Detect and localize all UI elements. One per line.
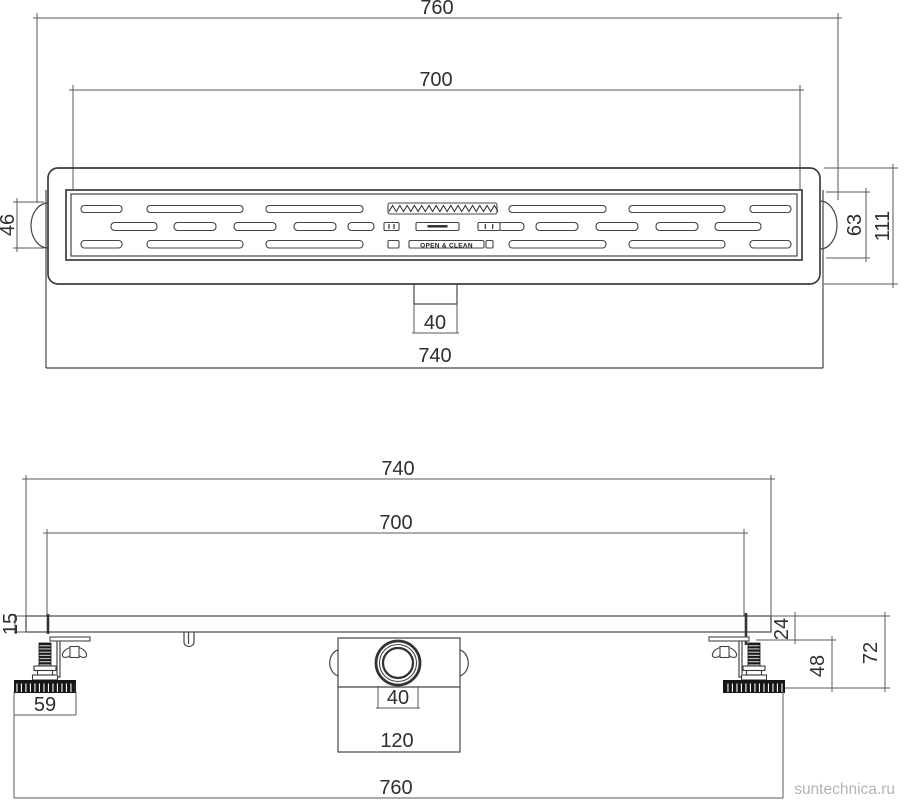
trap-clip-left bbox=[330, 650, 338, 676]
grate-slot bbox=[509, 206, 606, 213]
grate-slot bbox=[750, 241, 791, 249]
outlet-stub bbox=[414, 284, 457, 304]
dim-foot-width: 59 bbox=[14, 692, 76, 716]
grate-slot bbox=[81, 241, 122, 249]
grate-center-box bbox=[388, 241, 399, 249]
grate-slot bbox=[498, 223, 524, 231]
grate-slot bbox=[629, 206, 725, 213]
grate-slot bbox=[596, 223, 638, 231]
grate-slot bbox=[266, 206, 363, 213]
foot-collar bbox=[743, 666, 765, 671]
grate-slot bbox=[629, 241, 725, 249]
foot-right bbox=[709, 637, 785, 693]
dim-label-760-side: 760 bbox=[379, 777, 412, 799]
threaded-rod bbox=[748, 643, 760, 666]
grate-slot bbox=[111, 223, 157, 231]
grate-slot bbox=[266, 241, 363, 249]
foot-collar bbox=[38, 671, 53, 676]
micro-text-mark bbox=[428, 225, 448, 227]
grate-slot bbox=[174, 223, 216, 231]
hold-down-tab bbox=[184, 632, 194, 647]
wing-nut-body bbox=[70, 647, 79, 658]
grate-slot bbox=[81, 206, 122, 213]
watermark: suntechnica.ru bbox=[794, 781, 895, 798]
clamp-plate bbox=[709, 637, 749, 641]
grate-slot bbox=[147, 241, 243, 249]
zigzag-slot bbox=[388, 203, 497, 214]
grate-center-box bbox=[384, 223, 399, 231]
dim-label-59: 59 bbox=[34, 694, 56, 716]
grate-slot bbox=[715, 223, 761, 231]
grate-slot bbox=[656, 223, 698, 231]
foot-disc-knurl bbox=[724, 683, 785, 693]
dim-label-48: 48 bbox=[807, 655, 829, 677]
grate-slot bbox=[147, 206, 243, 213]
grate-slot bbox=[536, 223, 578, 231]
foot-collar bbox=[742, 675, 767, 680]
micro-tick bbox=[393, 224, 394, 229]
dim-label-700-side: 700 bbox=[379, 512, 412, 534]
micro-tick bbox=[485, 224, 486, 229]
dim-label-24: 24 bbox=[771, 618, 793, 640]
dim-label-740-top: 740 bbox=[418, 345, 451, 367]
micro-tick bbox=[492, 224, 493, 229]
dim-channel-length-side: 700 bbox=[43, 512, 748, 616]
technical-drawing: 760 700 OPEN & CLEAN 46 bbox=[0, 0, 904, 800]
clamp-plate bbox=[50, 637, 90, 641]
foot-collar bbox=[33, 675, 58, 680]
dim-flange-width-side: 740 bbox=[22, 458, 775, 616]
dim-label-63: 63 bbox=[844, 214, 866, 236]
micro-tick bbox=[388, 224, 389, 229]
grate-center-label: OPEN & CLEAN bbox=[420, 243, 473, 250]
dim-outlet-top: 40 bbox=[412, 304, 459, 334]
dim-label-740-side: 740 bbox=[381, 458, 414, 480]
foot-left bbox=[14, 637, 90, 693]
grate-slot bbox=[234, 223, 276, 231]
dim-label-40-side: 40 bbox=[387, 687, 409, 709]
dim-label-40-top: 40 bbox=[424, 312, 446, 334]
dim-label-120: 120 bbox=[380, 730, 413, 752]
grate-slot bbox=[348, 223, 374, 231]
trap-clip-right bbox=[460, 650, 468, 676]
foot-collar bbox=[747, 671, 762, 676]
side-view: 740 700 15 24 48 72 bbox=[0, 458, 890, 799]
dim-label-46: 46 bbox=[0, 214, 19, 236]
grate-slot bbox=[750, 206, 791, 213]
grate-center-box bbox=[486, 241, 493, 249]
dim-grate-length-top: 700 bbox=[69, 69, 804, 189]
dim-label-111: 111 bbox=[872, 211, 894, 241]
dim-label-700-top: 700 bbox=[419, 69, 452, 91]
grate-center-box bbox=[478, 223, 500, 231]
grate-slot bbox=[294, 223, 336, 231]
dim-label-72: 72 bbox=[860, 642, 882, 664]
threaded-rod bbox=[39, 643, 51, 666]
dim-plate-thickness: 15 bbox=[0, 613, 26, 635]
dim-label-760-top: 760 bbox=[420, 0, 453, 19]
foot-disc-knurl bbox=[15, 683, 76, 693]
drain-body-outline bbox=[31, 168, 837, 368]
wing-nut-body bbox=[720, 647, 729, 658]
dim-label-15: 15 bbox=[0, 613, 22, 635]
foot-collar bbox=[34, 666, 56, 671]
trap-assembly: 40 120 bbox=[330, 638, 469, 752]
grate-slot bbox=[509, 241, 606, 249]
dim-right-socket: 63 bbox=[826, 188, 870, 262]
grate-slots bbox=[81, 203, 791, 248]
dim-overall-width-top: 760 bbox=[33, 0, 842, 203]
top-view: 760 700 OPEN & CLEAN 46 bbox=[0, 0, 898, 368]
